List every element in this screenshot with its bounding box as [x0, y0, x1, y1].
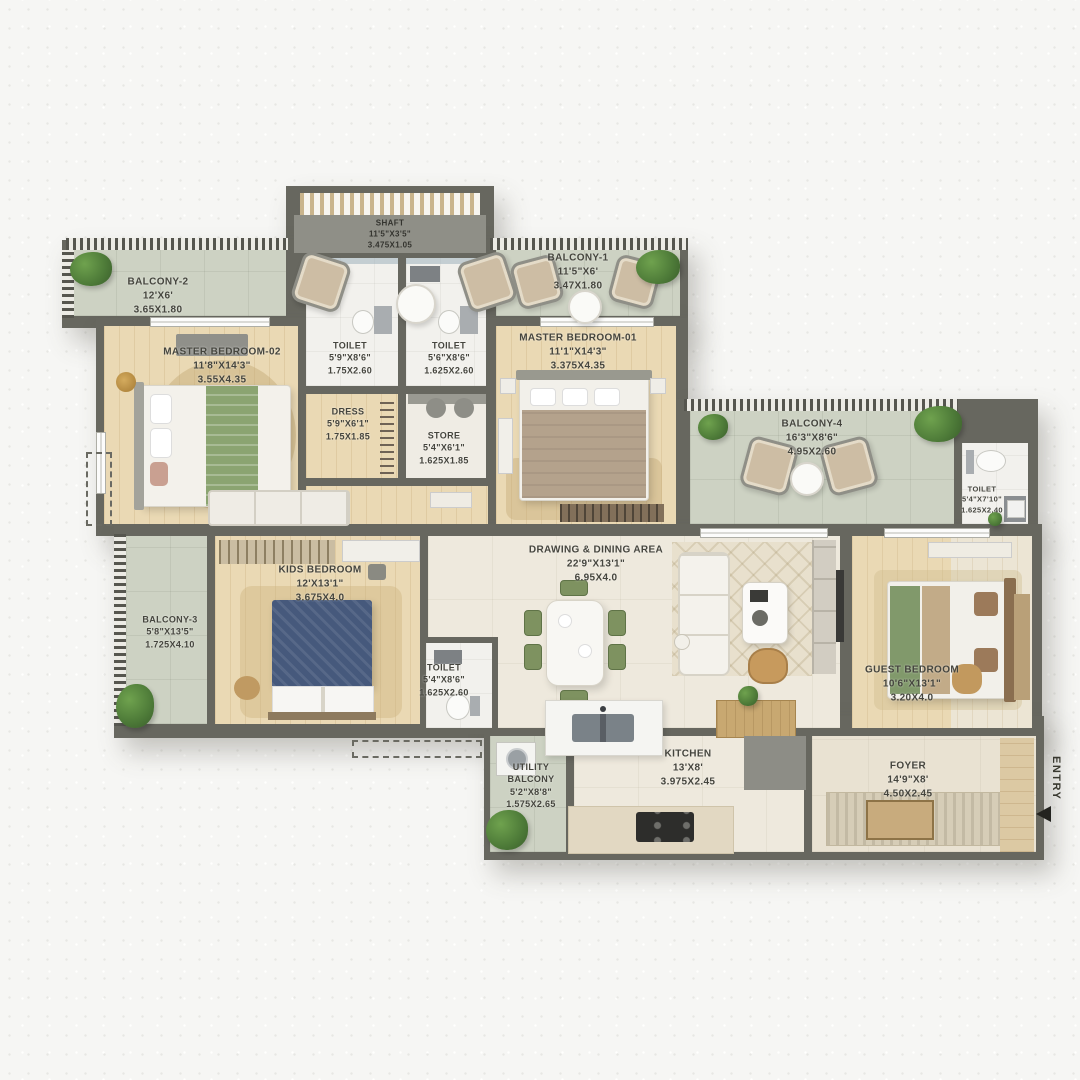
room-dim-m: 3.20X4.0 — [822, 691, 1002, 705]
washbasin — [410, 266, 440, 282]
room-name: TOILET — [399, 661, 489, 673]
foyer-wood-strip — [1000, 738, 1034, 852]
label-balcony-3: BALCONY-3 5'8"X13'5" 1.725X4.10 — [125, 613, 215, 650]
label-balcony-1: BALCONY-1 11'5"X6' 3.47X1.80 — [488, 251, 668, 292]
room-name: DRESS — [303, 405, 393, 417]
entry-arrow-icon — [1036, 806, 1051, 822]
room-name: STORE — [399, 429, 489, 441]
room-dim-m: 1.575X2.65 — [486, 798, 576, 810]
label-store: STORE 5'4"X6'1" 1.625X1.85 — [399, 429, 489, 466]
label-master-bedroom-02: MASTER BEDROOM-02 11'8"X14'3" 3.55X4.35 — [132, 345, 312, 386]
label-kids-bedroom: KIDS BEDROOM 12'X13'1" 3.675X4.0 — [230, 563, 410, 604]
room-dim-m: 6.95X4.0 — [506, 571, 686, 585]
toilet-bowl — [352, 310, 374, 334]
basket — [426, 398, 446, 418]
room-name: BALCONY-3 — [125, 613, 215, 625]
window-guest-top — [884, 528, 990, 538]
faucet — [600, 706, 606, 712]
label-guest-bedroom: GUEST BEDROOM 10'6"X13'1" 3.20X4.0 — [822, 663, 1002, 704]
desk — [928, 542, 1012, 558]
room-dim-m: 1.725X4.10 — [125, 638, 215, 650]
room-dim-ft: 5'8"X13'5" — [125, 626, 215, 638]
room-dim-m: 1.625X2.60 — [399, 686, 489, 698]
plant — [914, 406, 962, 442]
toilet-tank — [374, 306, 392, 334]
label-drawing-dining: DRAWING & DINING AREA 22'9"X13'1" 6.95X4… — [506, 543, 686, 584]
room-name: BALCONY-1 — [488, 251, 668, 265]
dining-chair — [608, 644, 626, 670]
room-dim-m: 3.47X1.80 — [488, 279, 668, 293]
room-dim-ft: 11'8"X14'3" — [132, 359, 312, 373]
plant — [738, 686, 758, 706]
label-toilet-common: TOILET 5'4"X8'6" 1.625X2.60 — [399, 661, 489, 698]
room-dim-m: 1.625X1.85 — [399, 454, 489, 466]
room-dim-m: 1.625X2.40 — [947, 505, 1017, 515]
label-master-bedroom-01: MASTER BEDROOM-01 11'1"X14'3" 3.375X4.35 — [488, 331, 668, 372]
room-name: MASTER BEDROOM-01 — [488, 331, 668, 345]
wardrobe-kids — [219, 540, 335, 564]
balcony-table — [396, 284, 436, 324]
railing-balcony4-top — [684, 399, 958, 411]
room-name: SHAFT — [330, 217, 450, 228]
nightstand — [500, 378, 516, 394]
room-dim-ft: 16'3"X8'6" — [722, 431, 902, 445]
basket — [454, 398, 474, 418]
shaft-louvers — [300, 193, 480, 215]
sofa-mb02 — [208, 490, 350, 526]
room-dim-ft: 5'9"X6'1" — [303, 418, 393, 430]
nightstand — [650, 378, 666, 394]
room-dim-ft: 22'9"X13'1" — [506, 557, 686, 571]
partition-shelf — [812, 540, 836, 674]
room-dim-m: 1.75X1.85 — [303, 430, 393, 442]
window-drawing-balcony4 — [700, 528, 828, 538]
label-foyer: FOYER 14'9"X8' 4.50X2.45 — [818, 759, 998, 800]
tv-dresser — [498, 418, 513, 474]
room-dim-m: 3.375X4.35 — [488, 359, 668, 373]
pillow — [150, 428, 172, 458]
room-dim-m: 3.675X4.0 — [230, 591, 410, 605]
label-toilet-mb01: TOILET 5'6"X8'6" 1.625X2.60 — [404, 339, 494, 376]
entry-label: ENTRY — [1050, 756, 1062, 800]
floor-lamp — [674, 634, 690, 650]
label-balcony-4: BALCONY-4 16'3"X8'6" 4.95X2.60 — [722, 417, 902, 458]
kitchen-island — [716, 700, 796, 738]
label-dress: DRESS 5'9"X6'1" 1.75X1.85 — [303, 405, 393, 442]
stove — [636, 812, 694, 842]
room-dim-m: 3.55X4.35 — [132, 373, 312, 387]
wardrobe-mb01 — [560, 504, 664, 522]
bed-footboard — [268, 712, 376, 720]
dining-chair — [524, 610, 542, 636]
room-dim-ft: 10'6"X13'1" — [822, 677, 1002, 691]
console-table — [430, 492, 472, 508]
room-name: BALCONY-4 — [722, 417, 902, 431]
label-toilet-right: TOILET 5'4"X7'10" 1.625X2.40 — [947, 484, 1017, 515]
toilet-tank — [470, 696, 480, 716]
room-name: UTILITY BALCONY — [499, 761, 563, 786]
label-balcony-2: BALCONY-2 12'X6' 3.65X1.80 — [68, 275, 248, 316]
room-dim-ft: 11'5"X6' — [488, 265, 668, 279]
room-dim-m: 4.50X2.45 — [818, 787, 998, 801]
pillow — [594, 388, 620, 406]
window-mb02-balcony — [150, 317, 270, 327]
toilet-tank — [966, 450, 974, 474]
room-dim-m: 3.475X1.05 — [330, 240, 450, 251]
room-dim-ft: 5'4"X6'1" — [399, 442, 489, 454]
bed-kids-blanket — [272, 600, 372, 686]
dining-chair — [608, 610, 626, 636]
dining-table — [546, 600, 604, 686]
label-utility-balcony: UTILITY BALCONY 5'2"X8'8" 1.575X2.65 — [486, 761, 576, 811]
beanbag — [234, 676, 260, 700]
toilet-bowl — [976, 450, 1006, 472]
room-dim-m: 4.95X2.60 — [722, 445, 902, 459]
room-name: BALCONY-2 — [68, 275, 248, 289]
bed-headboard — [134, 382, 144, 510]
room-dim-ft: 5'9"X8'6" — [305, 352, 395, 364]
toilet-bowl — [438, 310, 460, 334]
balcony-table — [568, 290, 602, 324]
bed-blanket-green — [206, 386, 258, 506]
room-name: TOILET — [947, 484, 1017, 494]
room-dim-ft: 12'X13'1" — [230, 577, 410, 591]
room-dim-ft: 5'6"X8'6" — [404, 352, 494, 364]
pillow — [150, 462, 168, 486]
room-dim-ft: 5'2"X8'8" — [486, 786, 576, 798]
tray — [750, 590, 768, 602]
room-dim-ft: 12'X6' — [68, 289, 248, 303]
wardrobe-guest — [1014, 594, 1030, 700]
room-name: TOILET — [404, 339, 494, 351]
bed-kids-pillows — [272, 686, 374, 714]
room-dim-ft: 13'X8' — [598, 761, 778, 775]
floor-plan: SHAFT 11'5"X3'5" 3.475X1.05 BALCONY-2 12… — [0, 0, 1080, 1080]
ledge-outline — [352, 740, 482, 758]
room-dim-ft: 5'4"X7'10" — [947, 495, 1017, 505]
room-dim-m: 1.625X2.60 — [404, 364, 494, 376]
plant — [116, 684, 154, 728]
pillow — [150, 394, 172, 424]
balcony-table — [790, 462, 824, 496]
bed-blanket — [522, 410, 646, 498]
plate — [578, 644, 592, 658]
room-dim-m: 3.65X1.80 — [68, 303, 248, 317]
railing-balcony1-top — [490, 238, 688, 250]
foyer-art — [866, 800, 934, 840]
room-name: FOYER — [818, 759, 998, 773]
room-name: MASTER BEDROOM-02 — [132, 345, 312, 359]
room-dim-ft: 11'1"X14'3" — [488, 345, 668, 359]
pillow — [530, 388, 556, 406]
ac-unit-outline — [86, 452, 112, 526]
room-dim-ft: 14'9"X8' — [818, 773, 998, 787]
room-name: DRAWING & DINING AREA — [506, 543, 686, 557]
room-dim-m: 1.75X2.60 — [305, 364, 395, 376]
room-name: KITCHEN — [598, 747, 778, 761]
room-dim-m: 3.975X2.45 — [598, 775, 778, 789]
room-name: GUEST BEDROOM — [822, 663, 1002, 677]
pillow — [562, 388, 588, 406]
kitchen-sink — [572, 714, 634, 742]
desk — [342, 540, 420, 562]
armchair — [748, 648, 788, 684]
label-shaft: SHAFT 11'5"X3'5" 3.475X1.05 — [330, 217, 450, 250]
pillow — [974, 592, 998, 616]
dining-chair — [524, 644, 542, 670]
label-toilet-mb02: TOILET 5'9"X8'6" 1.75X2.60 — [305, 339, 395, 376]
room-dim-ft: 5'4"X8'6" — [399, 674, 489, 686]
railing-balcony2-top — [66, 238, 288, 250]
label-kitchen: KITCHEN 13'X8' 3.975X2.45 — [598, 747, 778, 788]
bowl — [752, 610, 768, 626]
plate — [558, 614, 572, 628]
store-shelf — [408, 394, 486, 404]
room-name: TOILET — [305, 339, 395, 351]
room-name: KIDS BEDROOM — [230, 563, 410, 577]
plant — [486, 810, 528, 850]
room-dim-ft: 11'5"X3'5" — [330, 228, 450, 239]
